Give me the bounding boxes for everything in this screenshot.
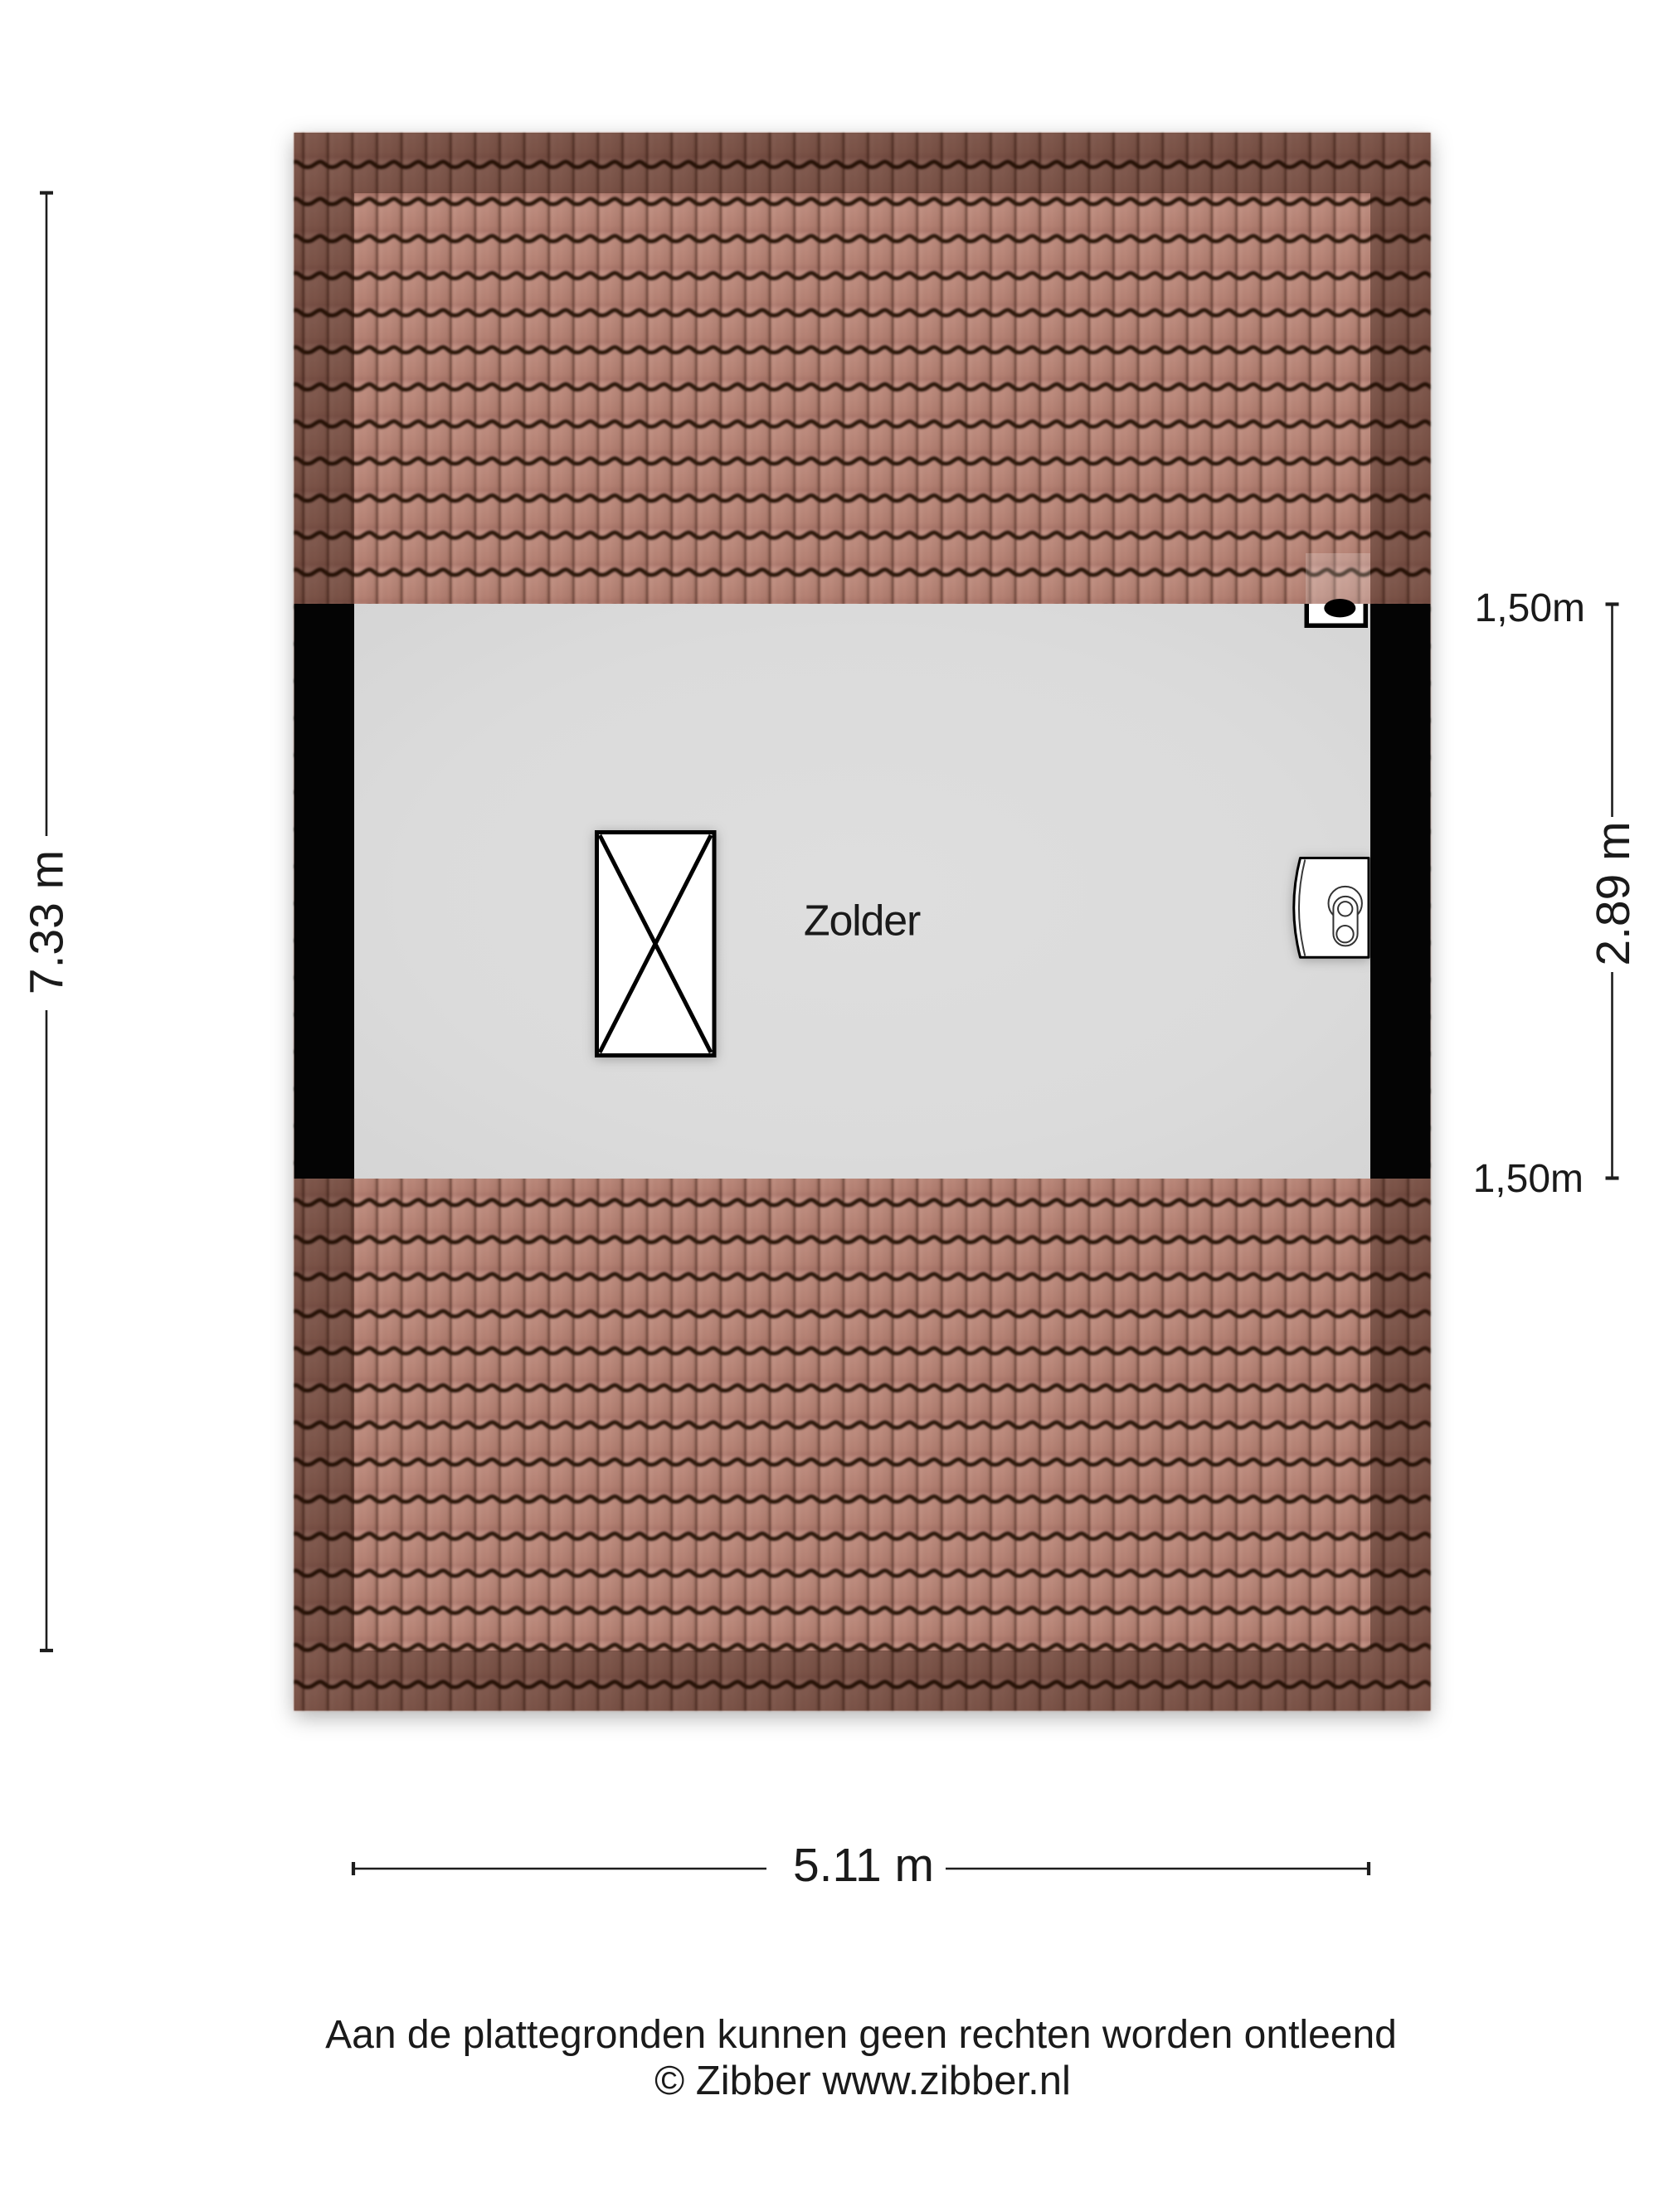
svg-text:1,50m: 1,50m (1475, 586, 1585, 630)
svg-text:2.89 m: 2.89 m (1587, 821, 1640, 965)
svg-text:Aan de plattegronden kunnen ge: Aan de plattegronden kunnen geen rechten… (325, 2013, 1397, 2057)
svg-text:Zolder: Zolder (804, 897, 921, 946)
svg-text:7.33 m: 7.33 m (21, 850, 74, 994)
svg-text:© Zibber www.zibber.nl: © Zibber www.zibber.nl (654, 2059, 1071, 2103)
svg-text:1,50m: 1,50m (1473, 1157, 1584, 1201)
svg-text:5.11 m: 5.11 m (793, 1839, 934, 1892)
